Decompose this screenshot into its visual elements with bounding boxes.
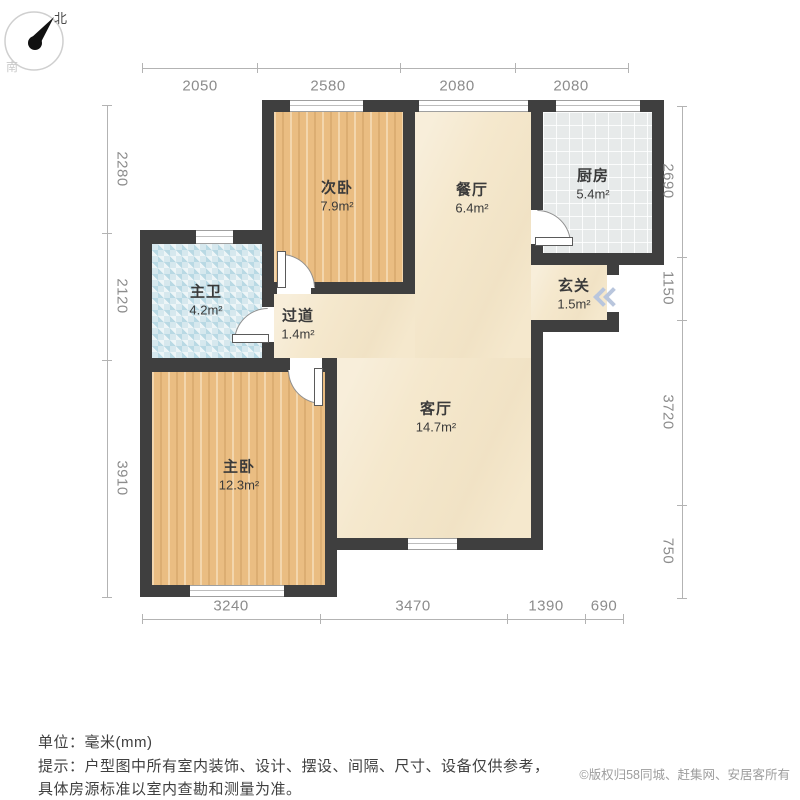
- dimension-tick: [142, 63, 143, 73]
- room-area: 6.4m²: [455, 200, 488, 216]
- dimension-tick: [257, 63, 258, 73]
- window: [290, 100, 363, 112]
- wall: [531, 253, 664, 265]
- dimension-tick: [142, 614, 143, 624]
- room-name: 次卧: [320, 180, 353, 199]
- dimension-tick: [102, 105, 112, 106]
- window: [556, 100, 640, 112]
- dimension-tick: [677, 106, 687, 107]
- wall: [457, 538, 543, 550]
- wall: [233, 230, 274, 244]
- room-label-hallway: 过道 1.4m²: [281, 308, 314, 343]
- wall: [262, 100, 274, 307]
- dimension-tick: [102, 233, 112, 234]
- dimension-tick: [515, 63, 516, 73]
- dimension-line-top: [142, 68, 628, 69]
- dimension-line-bottom: [142, 619, 623, 620]
- room-area: 7.9m²: [320, 198, 353, 214]
- dimension-tick: [400, 63, 401, 73]
- wall: [325, 358, 337, 597]
- room-label-master-bath: 主卫 4.2m²: [189, 284, 222, 319]
- dimension-line-right: [682, 106, 683, 598]
- unit-note: 单位：毫米(mm): [38, 731, 152, 752]
- dimension-label: 3910: [114, 460, 131, 495]
- dimension-label: 3720: [660, 394, 677, 429]
- floorplan-page: 北 南: [0, 0, 800, 800]
- room-label-master-bedroom: 主卧 12.3m²: [219, 459, 259, 494]
- dimension-tick: [677, 320, 687, 321]
- room-name: 过道: [281, 308, 314, 327]
- room-name: 客厅: [416, 401, 456, 420]
- room-name: 玄关: [557, 278, 590, 297]
- dimension-line-left: [107, 105, 108, 597]
- compass: 北 南: [2, 2, 82, 82]
- window: [419, 100, 528, 112]
- room-area: 4.2m²: [189, 302, 222, 318]
- tip-note-line2: 具体房源标准以室内查勘和测量为准。: [38, 778, 302, 799]
- dimension-tick: [677, 505, 687, 506]
- wall: [322, 358, 337, 372]
- dimension-tick: [507, 614, 508, 624]
- dimension-tick: [102, 597, 112, 598]
- door-leaf-second-bedroom: [277, 251, 286, 288]
- room-area: 1.5m²: [557, 296, 590, 312]
- room-label-entry: 玄关 1.5m²: [557, 278, 590, 313]
- wall: [311, 282, 415, 294]
- dimension-tick: [623, 614, 624, 624]
- dimension-tick: [677, 257, 687, 258]
- wall: [140, 230, 196, 244]
- compass-south-label: 南: [6, 58, 18, 75]
- room-area: 5.4m²: [576, 186, 609, 202]
- room-name: 厨房: [576, 168, 609, 187]
- room-label-living: 客厅 14.7m²: [416, 401, 456, 436]
- wall: [140, 358, 290, 372]
- dimension-label: 690: [591, 598, 618, 615]
- dimension-label: 2080: [439, 78, 474, 95]
- dimension-label: 3470: [395, 598, 430, 615]
- door-leaf-master-bath: [232, 334, 269, 343]
- room-label-dining: 餐厅 6.4m²: [455, 182, 488, 217]
- wall: [531, 320, 619, 332]
- dimension-label: 2690: [660, 163, 677, 198]
- dimension-tick: [102, 360, 112, 361]
- room-area: 1.4m²: [281, 326, 314, 342]
- dimension-tick: [585, 614, 586, 624]
- dimension-label: 2280: [114, 151, 131, 186]
- dimension-label: 2080: [553, 78, 588, 95]
- wall: [331, 538, 408, 550]
- dimension-tick: [320, 614, 321, 624]
- floor-living: [337, 358, 531, 538]
- dimension-label: 1390: [528, 598, 563, 615]
- room-name: 主卫: [189, 284, 222, 303]
- dimension-label: 750: [660, 538, 677, 565]
- window: [408, 538, 457, 550]
- room-name: 主卧: [219, 459, 259, 478]
- wall: [531, 100, 543, 210]
- wall: [531, 320, 543, 550]
- dimension-tick: [628, 63, 629, 73]
- floor-dining: [415, 112, 531, 358]
- room-area: 12.3m²: [219, 477, 259, 493]
- tip-note-line1: 提示：户型图中所有室内装饰、设计、摆设、间隔、尺寸、设备仅供参考，: [38, 755, 550, 776]
- door-leaf-master-bedroom: [314, 368, 323, 406]
- dimension-label: 2120: [114, 278, 131, 313]
- wall: [403, 100, 415, 294]
- dimension-label: 2580: [310, 78, 345, 95]
- window: [190, 585, 284, 597]
- dimension-label: 3240: [213, 598, 248, 615]
- copyright-text: ©版权归58同城、赶集网、安居客所有: [579, 764, 790, 783]
- wall: [284, 585, 337, 597]
- dimension-label: 1150: [660, 271, 677, 305]
- room-label-second-bedroom: 次卧 7.9m²: [320, 180, 353, 215]
- door-leaf-kitchen: [535, 237, 573, 246]
- room-area: 14.7m²: [416, 419, 456, 435]
- room-label-kitchen: 厨房 5.4m²: [576, 168, 609, 203]
- window: [196, 230, 233, 244]
- room-name: 餐厅: [455, 182, 488, 201]
- compass-north-label: 北: [54, 8, 67, 27]
- dimension-label: 2050: [182, 78, 217, 95]
- wall: [607, 265, 619, 275]
- wall: [262, 282, 277, 294]
- wall: [140, 230, 152, 597]
- dimension-tick: [677, 598, 687, 599]
